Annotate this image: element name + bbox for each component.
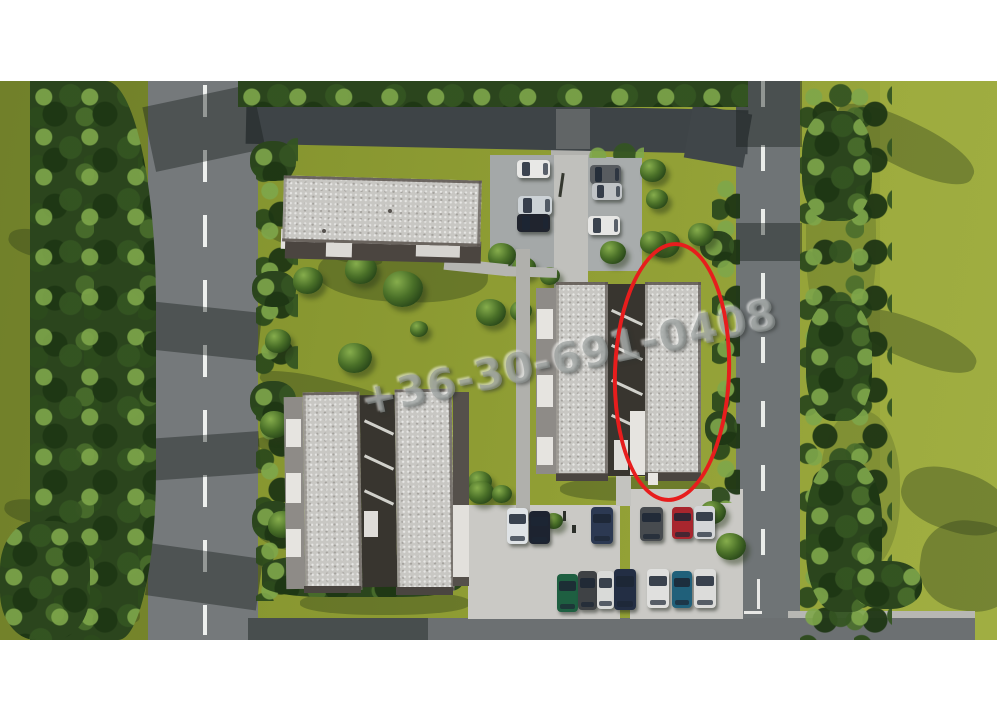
bottom-left-south-edge [304,586,361,593]
road-shadow [147,431,262,481]
top-alley-shadow-band [246,100,749,155]
car-rear-window [599,601,611,606]
car-white-blue [507,508,528,544]
car-dark-navy [517,214,550,232]
right-road [736,81,800,640]
road-shadow [736,223,802,261]
pedestrian [572,525,576,533]
garden-bush [476,299,506,326]
bottom-left-facade-white [286,419,301,447]
car-windshield [522,216,530,230]
middle-left-facade-white [537,437,553,465]
car-windshield [649,576,667,586]
car-windshield [642,513,660,522]
car-white [588,216,620,235]
car-silver [592,183,622,200]
bottom-left-facade-white [286,473,301,503]
car-dark-navy [529,511,550,544]
car-rear-window [697,600,713,605]
path-to-middle-buildings [505,266,557,278]
garden-bush [646,189,668,209]
bottom-gap-white-wall [364,511,378,537]
stop-line-horizontal [744,611,762,614]
roof-vent [388,209,392,213]
garden-bush [468,481,494,504]
car-gray [590,165,621,184]
car-silver-white [694,506,715,539]
car-rear-window [560,604,575,609]
garden-bush [640,159,666,182]
car-rear-window [643,534,660,539]
car-windshield [580,578,595,588]
garden-bush [410,321,428,337]
car-windshield [522,162,530,176]
bottom-left-roof [303,392,363,591]
site-render: +36-30-691-0408 [0,81,997,640]
middle-left-facade-white [537,309,553,339]
parking-hedge [584,140,644,158]
bottom-right-facade-white [453,505,469,577]
car-rear-window [614,219,618,232]
car-rear-window [594,536,610,541]
car-windshield [595,167,602,181]
car-rear-window [510,536,525,541]
middle-left-south-edge [556,474,608,481]
car-navy-blue [591,507,613,544]
car-windshield [593,218,601,232]
bottom-left-facade-white [286,529,301,557]
car-rear-window [650,600,666,605]
car-windshield [523,198,531,212]
car-rear-window [675,532,690,536]
car-windshield [696,512,713,521]
car-rear-window [543,217,547,229]
car-rear-window [532,537,547,542]
bottom-right-south-edge [396,587,453,595]
car-rear-window [615,168,619,181]
car-dark-gray [640,507,663,541]
car-windshield [674,578,690,588]
car-rear-window [675,600,689,605]
car-white [517,160,550,178]
car-red [672,507,693,539]
car-teal [672,571,692,608]
car-windshield [531,517,548,526]
roof-vent [322,229,326,233]
car-silver-blue [518,196,552,215]
car-rear-window [545,199,549,212]
car-rear-window [543,163,547,175]
car-windshield [593,514,611,524]
garden-bush [338,343,372,373]
right-bush-cluster [852,561,922,609]
stop-line-vertical [757,579,760,609]
car-rear-window [697,532,712,537]
right-tree-cluster [806,301,872,421]
car-white [597,571,614,609]
top-hedge-row [238,81,748,107]
bottom-right-roof [395,389,455,592]
car-windshield [696,576,714,586]
garden-bush [492,485,512,503]
garden-bush [293,267,323,294]
car-windshield [674,513,691,521]
car-white [694,569,716,608]
site-plan-screenshot: +36-30-691-0408 [0,0,1000,728]
car-rear-window [581,602,595,607]
car-windshield [616,576,634,587]
roadside-hedge-cluster [252,271,296,307]
car-green [557,574,578,612]
car-windshield [509,514,526,523]
left-tree-cluster [0,521,90,640]
car-windshield [597,185,604,198]
car-rear-window [617,601,633,607]
car-navy [614,569,636,610]
road-shadow [248,618,428,640]
right-tree-cluster [802,111,872,221]
car-dark-gray [578,571,597,610]
car-windshield [599,578,613,588]
top-building-roof [282,175,482,246]
lamp-post [563,511,566,521]
car-windshield [559,581,576,591]
car-rear-window [616,186,620,198]
car-white [647,569,669,608]
